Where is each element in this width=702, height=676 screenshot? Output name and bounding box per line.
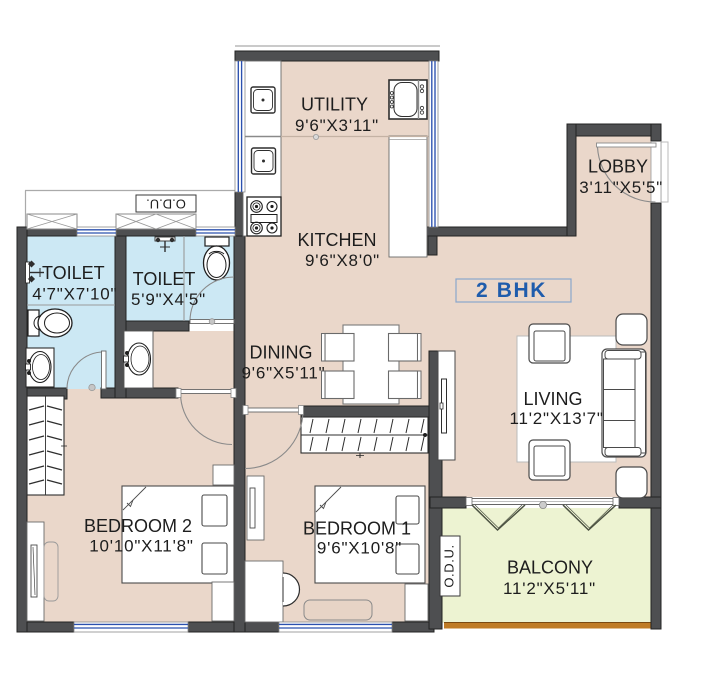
svg-text:9'6"X3'11": 9'6"X3'11" xyxy=(295,116,379,135)
svg-text:9'6"X10'8": 9'6"X10'8" xyxy=(317,538,402,557)
svg-text:3'11"X5'5": 3'11"X5'5" xyxy=(579,178,663,197)
svg-text:4'7"X7'10": 4'7"X7'10" xyxy=(32,284,117,303)
svg-text:LOBBY: LOBBY xyxy=(588,156,648,176)
svg-text:BEDROOM 1: BEDROOM 1 xyxy=(303,518,411,538)
svg-text:TOILET: TOILET xyxy=(133,269,196,289)
svg-text:DINING: DINING xyxy=(250,342,313,362)
svg-text:9'6"X8'0": 9'6"X8'0" xyxy=(305,251,380,270)
svg-text:2 BHK: 2 BHK xyxy=(476,279,547,302)
svg-text:5'9"X4'5": 5'9"X4'5" xyxy=(131,290,206,309)
svg-text:TOILET: TOILET xyxy=(42,263,105,283)
svg-text:BEDROOM 2: BEDROOM 2 xyxy=(84,516,192,536)
svg-text:9'6"X5'11": 9'6"X5'11" xyxy=(242,363,326,382)
svg-text:KITCHEN: KITCHEN xyxy=(297,230,376,250)
svg-text:BALCONY: BALCONY xyxy=(507,557,593,577)
svg-text:11'2"X13'7": 11'2"X13'7" xyxy=(510,409,604,428)
svg-text:UTILITY: UTILITY xyxy=(301,94,368,114)
svg-text:O.D.U.: O.D.U. xyxy=(146,197,186,212)
svg-text:LIVING: LIVING xyxy=(523,389,582,409)
svg-text:10'10"X11'8": 10'10"X11'8" xyxy=(89,536,193,555)
svg-text:O.D.U.: O.D.U. xyxy=(441,544,456,587)
svg-text:11'2"X5'11": 11'2"X5'11" xyxy=(503,579,596,598)
